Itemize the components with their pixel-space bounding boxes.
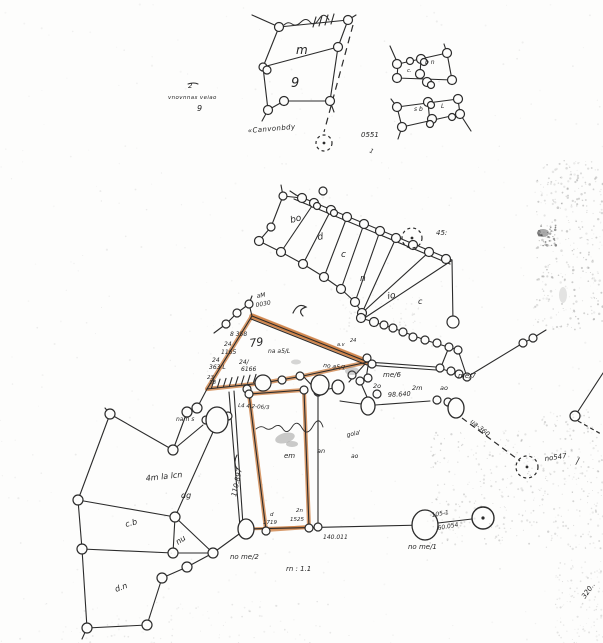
noise-dot bbox=[156, 602, 157, 603]
noise-dot bbox=[555, 517, 556, 518]
noise-dot bbox=[442, 146, 444, 148]
noise-dot bbox=[544, 318, 545, 319]
label-am: aM bbox=[256, 291, 267, 300]
noise-dot bbox=[591, 426, 593, 428]
noise-dot bbox=[54, 343, 56, 345]
noise-dot bbox=[525, 511, 526, 512]
noise-dot bbox=[568, 510, 569, 511]
noise-dot bbox=[572, 390, 573, 391]
noise-dot bbox=[555, 520, 557, 522]
noise-dot bbox=[340, 328, 341, 329]
noise-dot bbox=[563, 624, 565, 626]
noise-dot bbox=[590, 256, 591, 257]
noise-dot bbox=[554, 201, 556, 203]
noise-dot bbox=[587, 266, 590, 269]
noise-dot bbox=[600, 547, 602, 549]
noise-dot bbox=[330, 288, 332, 290]
noise-dot bbox=[588, 618, 589, 619]
noise-dot bbox=[588, 183, 591, 186]
noise-dot bbox=[594, 599, 595, 600]
noise-dot bbox=[344, 77, 345, 78]
noise-dot bbox=[564, 310, 565, 311]
noise-dot bbox=[365, 316, 367, 318]
noise-dot bbox=[135, 189, 137, 191]
noise-dot bbox=[264, 167, 265, 168]
noise-dot bbox=[184, 247, 186, 249]
label-plot-number: 9 bbox=[291, 76, 299, 91]
noise-dot bbox=[295, 134, 296, 135]
noise-dot bbox=[80, 632, 81, 633]
label-ao: ao bbox=[440, 384, 448, 392]
noise-dot bbox=[390, 305, 392, 307]
noise-dot bbox=[582, 300, 583, 301]
noise-dot bbox=[555, 425, 557, 427]
noise-dot bbox=[547, 494, 548, 495]
noise-dot bbox=[572, 211, 573, 212]
noise-dot bbox=[559, 597, 561, 599]
noise-dot bbox=[83, 610, 85, 612]
label-me6: me/6 bbox=[383, 371, 401, 379]
survey-marker bbox=[368, 360, 376, 368]
noise-dot bbox=[586, 205, 587, 206]
noise-dot bbox=[353, 517, 355, 519]
noise-dot bbox=[572, 548, 574, 550]
noise-dot bbox=[561, 516, 562, 517]
survey-marker bbox=[305, 524, 313, 532]
survey-marker bbox=[570, 411, 580, 421]
noise-dot bbox=[582, 177, 584, 179]
label-em: em bbox=[284, 452, 295, 460]
noise-dot bbox=[153, 637, 154, 638]
noise-dot bbox=[535, 623, 536, 624]
noise-dot bbox=[348, 298, 349, 299]
noise-dot bbox=[560, 183, 562, 185]
noise-dot bbox=[495, 115, 496, 116]
noise-dot bbox=[447, 540, 449, 542]
noise-dot bbox=[123, 49, 125, 51]
noise-dot bbox=[536, 304, 538, 306]
noise-dot bbox=[578, 188, 579, 189]
noise-dot bbox=[28, 300, 30, 302]
noise-dot bbox=[287, 632, 288, 633]
label-parcel-number: c.b bbox=[124, 517, 138, 529]
noise-dot bbox=[393, 417, 395, 419]
noise-dot bbox=[32, 454, 33, 455]
noise-dot bbox=[548, 177, 550, 179]
noise-dot bbox=[540, 225, 542, 227]
noise-dot bbox=[572, 595, 573, 596]
noise-dot bbox=[537, 201, 539, 203]
noise-dot bbox=[566, 216, 568, 218]
noise-dot bbox=[387, 262, 389, 264]
noise-dot bbox=[176, 245, 177, 246]
noise-dot bbox=[539, 505, 540, 506]
noise-dot bbox=[273, 632, 274, 633]
noise-dot bbox=[0, 420, 1, 421]
noise-dot bbox=[594, 625, 595, 626]
label-parcel-number: d.n bbox=[114, 581, 129, 594]
noise-dot bbox=[487, 458, 488, 459]
noise-dot bbox=[581, 472, 583, 474]
noise-dot bbox=[218, 637, 219, 638]
noise-dot bbox=[580, 580, 582, 582]
noise-dot bbox=[597, 525, 599, 527]
noise-dot bbox=[569, 428, 570, 429]
noise-dot bbox=[536, 522, 538, 524]
noise-dot bbox=[539, 240, 540, 241]
noise-dot bbox=[586, 409, 588, 411]
noise-dot bbox=[552, 236, 553, 237]
noise-dot bbox=[374, 504, 375, 505]
noise-dot bbox=[558, 182, 560, 184]
noise-dot bbox=[569, 419, 570, 420]
noise-dot bbox=[476, 471, 477, 472]
noise-dot bbox=[506, 510, 507, 511]
noise-dot bbox=[485, 441, 486, 442]
noise-dot bbox=[548, 300, 550, 302]
noise-dot bbox=[595, 511, 597, 513]
noise-dot bbox=[394, 121, 395, 122]
noise-dot bbox=[88, 150, 89, 151]
noise-dot bbox=[502, 450, 504, 452]
noise-dot bbox=[363, 343, 364, 344]
noise-dot bbox=[195, 607, 197, 609]
noise-dot bbox=[599, 360, 601, 362]
survey-marker bbox=[425, 248, 434, 257]
noise-dot bbox=[590, 443, 591, 444]
noise-dot bbox=[51, 492, 52, 493]
noise-dot bbox=[344, 19, 345, 20]
noise-dot bbox=[542, 245, 543, 246]
noise-dot bbox=[441, 531, 443, 533]
noise-dot bbox=[365, 311, 367, 313]
noise-dot bbox=[457, 537, 458, 538]
noise-dot bbox=[578, 628, 579, 629]
control-point-dot bbox=[323, 142, 326, 145]
noise-dot bbox=[185, 88, 187, 90]
noise-dot bbox=[568, 456, 570, 458]
boundary-line bbox=[82, 549, 173, 553]
label-24c: 24 bbox=[212, 357, 220, 364]
noise-dot bbox=[594, 279, 597, 282]
noise-dot bbox=[180, 71, 182, 73]
label-2m: 2m bbox=[412, 384, 422, 392]
noise-dot bbox=[22, 150, 23, 151]
noise-dot bbox=[553, 430, 554, 431]
noise-dot bbox=[539, 490, 540, 491]
noise-dot bbox=[503, 523, 505, 525]
label-parcel-number: c bbox=[341, 250, 346, 260]
noise-dot bbox=[576, 479, 577, 480]
noise-dot bbox=[569, 434, 571, 436]
noise-dot bbox=[35, 263, 36, 264]
noise-dot bbox=[252, 601, 253, 602]
label-parcel-number: bo bbox=[289, 213, 303, 226]
noise-dot bbox=[432, 502, 433, 503]
noise-dot bbox=[46, 603, 47, 604]
noise-dot bbox=[301, 382, 302, 383]
noise-dot bbox=[503, 247, 504, 248]
noise-dot bbox=[576, 587, 578, 589]
noise-dot bbox=[212, 510, 213, 511]
noise-dot bbox=[558, 485, 559, 486]
noise-dot bbox=[551, 537, 553, 539]
noise-dot bbox=[172, 508, 173, 509]
noise-dot bbox=[270, 252, 272, 254]
noise-dot bbox=[437, 484, 439, 486]
noise-dot bbox=[469, 522, 471, 524]
noise-dot bbox=[588, 631, 590, 633]
noise-dot bbox=[516, 58, 518, 60]
noise-dot bbox=[536, 247, 538, 249]
noise-dot bbox=[139, 3, 141, 5]
noise-dot bbox=[495, 536, 497, 538]
noise-dot bbox=[534, 498, 535, 499]
noise-dot bbox=[562, 255, 563, 256]
noise-dot bbox=[592, 244, 594, 246]
noise-dot bbox=[600, 223, 601, 224]
noise-dot bbox=[426, 16, 427, 17]
boundary-line bbox=[78, 500, 175, 517]
noise-dot bbox=[593, 311, 595, 313]
noise-dot bbox=[600, 194, 601, 195]
noise-dot bbox=[589, 531, 590, 532]
noise-dot bbox=[48, 34, 49, 35]
noise-dot bbox=[143, 632, 144, 633]
noise-dot bbox=[410, 133, 412, 135]
noise-dot bbox=[554, 219, 556, 221]
noise-dot bbox=[412, 329, 413, 330]
noise-dot bbox=[453, 529, 454, 530]
noise-dot bbox=[547, 232, 548, 233]
noise-dot bbox=[400, 318, 402, 320]
noise-dot bbox=[477, 445, 479, 447]
noise-dot bbox=[507, 478, 508, 479]
noise-dot bbox=[567, 468, 568, 469]
noise-dot bbox=[578, 368, 580, 370]
noise-dot bbox=[524, 500, 526, 502]
noise-dot bbox=[549, 264, 550, 265]
noise-dot bbox=[519, 49, 521, 51]
noise-dot bbox=[543, 272, 545, 274]
label-320: 320.. bbox=[580, 581, 597, 600]
noise-dot bbox=[600, 489, 602, 491]
noise-dot bbox=[551, 276, 553, 278]
noise-dot bbox=[327, 604, 329, 606]
noise-dot bbox=[582, 533, 584, 535]
noise-dot bbox=[528, 543, 530, 545]
noise-dot bbox=[545, 478, 546, 479]
noise-dot bbox=[220, 237, 221, 238]
boundary-line bbox=[248, 375, 251, 383]
noise-dot bbox=[343, 580, 345, 582]
noise-dot bbox=[510, 528, 511, 529]
noise-dot bbox=[540, 464, 542, 466]
noise-dot bbox=[530, 485, 532, 487]
survey-marker bbox=[373, 390, 381, 398]
survey-marker bbox=[298, 194, 307, 203]
noise-dot bbox=[581, 186, 582, 187]
label-rn: rn : 1.1 bbox=[286, 565, 311, 573]
noise-dot bbox=[86, 322, 88, 324]
noise-dot bbox=[319, 18, 320, 19]
survey-marker-large bbox=[332, 380, 344, 394]
noise-dot bbox=[460, 433, 461, 434]
noise-dot bbox=[557, 420, 558, 421]
survey-marker-large bbox=[238, 519, 254, 539]
noise-dot bbox=[580, 466, 581, 467]
noise-dot bbox=[227, 328, 228, 329]
noise-dot bbox=[580, 625, 581, 626]
noise-dot bbox=[600, 242, 601, 243]
noise-dot bbox=[558, 589, 559, 590]
noise-dot bbox=[573, 597, 574, 598]
noise-dot bbox=[480, 481, 481, 482]
noise-dot bbox=[531, 468, 532, 469]
label-distance-ua360: ua-360 bbox=[469, 417, 492, 438]
noise-dot bbox=[576, 203, 578, 205]
noise-dot bbox=[465, 496, 467, 498]
noise-dot bbox=[8, 497, 10, 499]
survey-marker bbox=[314, 523, 322, 531]
noise-dot bbox=[573, 476, 575, 478]
noise-dot bbox=[467, 456, 469, 458]
noise-dot bbox=[562, 525, 564, 527]
noise-dot bbox=[547, 266, 549, 268]
noise-dot bbox=[579, 228, 580, 229]
noise-dot bbox=[315, 225, 316, 226]
noise-dot bbox=[595, 505, 597, 507]
noise-dot bbox=[170, 360, 171, 361]
noise-dot bbox=[548, 298, 550, 300]
noise-dot bbox=[517, 434, 519, 436]
noise-dot bbox=[219, 635, 220, 636]
noise-dot bbox=[586, 609, 587, 610]
noise-dot bbox=[509, 483, 511, 485]
survey-marker bbox=[314, 203, 321, 210]
noise-dot bbox=[596, 618, 598, 620]
noise-dot bbox=[596, 437, 598, 439]
noise-dot bbox=[594, 596, 595, 597]
noise-dot bbox=[472, 488, 473, 489]
noise-dot bbox=[458, 446, 460, 448]
noise-dot bbox=[586, 576, 588, 578]
noise-dot bbox=[579, 510, 581, 512]
noise-dot bbox=[507, 440, 509, 442]
noise-dot bbox=[442, 520, 443, 521]
noise-dot bbox=[276, 605, 278, 607]
noise-dot bbox=[579, 288, 580, 289]
noise-dot bbox=[590, 286, 591, 287]
noise-dot bbox=[527, 461, 528, 462]
noise-dot bbox=[433, 466, 435, 468]
survey-marker bbox=[454, 95, 463, 104]
noise-dot bbox=[146, 503, 148, 505]
noise-dot bbox=[599, 191, 600, 192]
noise-dot bbox=[572, 479, 573, 480]
noise-dot bbox=[561, 230, 563, 232]
noise-dot bbox=[403, 384, 404, 385]
noise-dot bbox=[302, 93, 303, 94]
noise-dot bbox=[506, 439, 507, 440]
noise-dot bbox=[499, 489, 501, 491]
noise-dot bbox=[560, 438, 562, 440]
noise-dot bbox=[385, 614, 387, 616]
noise-dot bbox=[490, 512, 491, 513]
noise-dot bbox=[599, 279, 602, 282]
survey-marker bbox=[222, 320, 230, 328]
noise-dot bbox=[565, 309, 566, 310]
label-owner: na a5/L bbox=[268, 348, 290, 355]
noise-dot bbox=[570, 308, 571, 309]
noise-dot bbox=[535, 192, 536, 193]
survey-marker bbox=[170, 512, 180, 522]
noise-dot bbox=[578, 322, 580, 324]
noise-dot bbox=[557, 206, 560, 209]
noise-dot bbox=[553, 508, 555, 510]
noise-dot bbox=[558, 385, 560, 387]
noise-dot bbox=[241, 230, 243, 232]
survey-marker bbox=[519, 339, 527, 347]
survey-marker bbox=[264, 106, 273, 115]
noise-dot bbox=[547, 265, 549, 267]
noise-dot bbox=[460, 432, 461, 433]
noise-dot bbox=[541, 192, 543, 194]
noise-dot bbox=[101, 200, 102, 201]
noise-dot bbox=[304, 132, 305, 133]
noise-dot bbox=[198, 352, 199, 353]
noise-dot bbox=[381, 409, 383, 411]
noise-dot bbox=[546, 424, 548, 426]
noise-dot bbox=[23, 23, 25, 25]
noise-dot bbox=[588, 493, 589, 494]
noise-dot bbox=[600, 615, 602, 617]
boundary-line bbox=[236, 377, 239, 385]
survey-marker bbox=[351, 298, 360, 307]
noise-dot bbox=[431, 345, 433, 347]
noise-dot bbox=[238, 292, 240, 294]
noise-dot bbox=[569, 229, 571, 231]
noise-dot bbox=[573, 162, 575, 164]
noise-dot bbox=[597, 514, 598, 515]
noise-dot bbox=[329, 116, 330, 117]
noise-dot bbox=[180, 603, 181, 604]
noise-dot bbox=[599, 236, 600, 237]
noise-dot bbox=[590, 482, 592, 484]
noise-dot bbox=[136, 148, 137, 149]
noise-dot bbox=[541, 488, 542, 489]
noise-dot bbox=[596, 631, 597, 632]
noise-dot bbox=[201, 318, 202, 319]
noise-dot bbox=[564, 208, 566, 210]
noise-dot bbox=[594, 297, 595, 298]
noise-dot bbox=[555, 227, 556, 228]
noise-dot bbox=[481, 306, 483, 308]
noise-dot bbox=[352, 447, 354, 449]
noise-dot bbox=[449, 638, 450, 639]
noise-dot bbox=[575, 123, 577, 125]
noise-dot bbox=[440, 450, 441, 451]
survey-marker bbox=[245, 300, 253, 308]
noise-dot bbox=[541, 498, 543, 500]
noise-dot bbox=[556, 326, 558, 328]
noise-dot bbox=[416, 302, 417, 303]
noise-dot bbox=[537, 458, 538, 459]
noise-dot bbox=[535, 319, 536, 320]
noise-dot bbox=[543, 232, 544, 233]
boundary-line bbox=[82, 549, 87, 628]
noise-dot bbox=[538, 319, 539, 320]
